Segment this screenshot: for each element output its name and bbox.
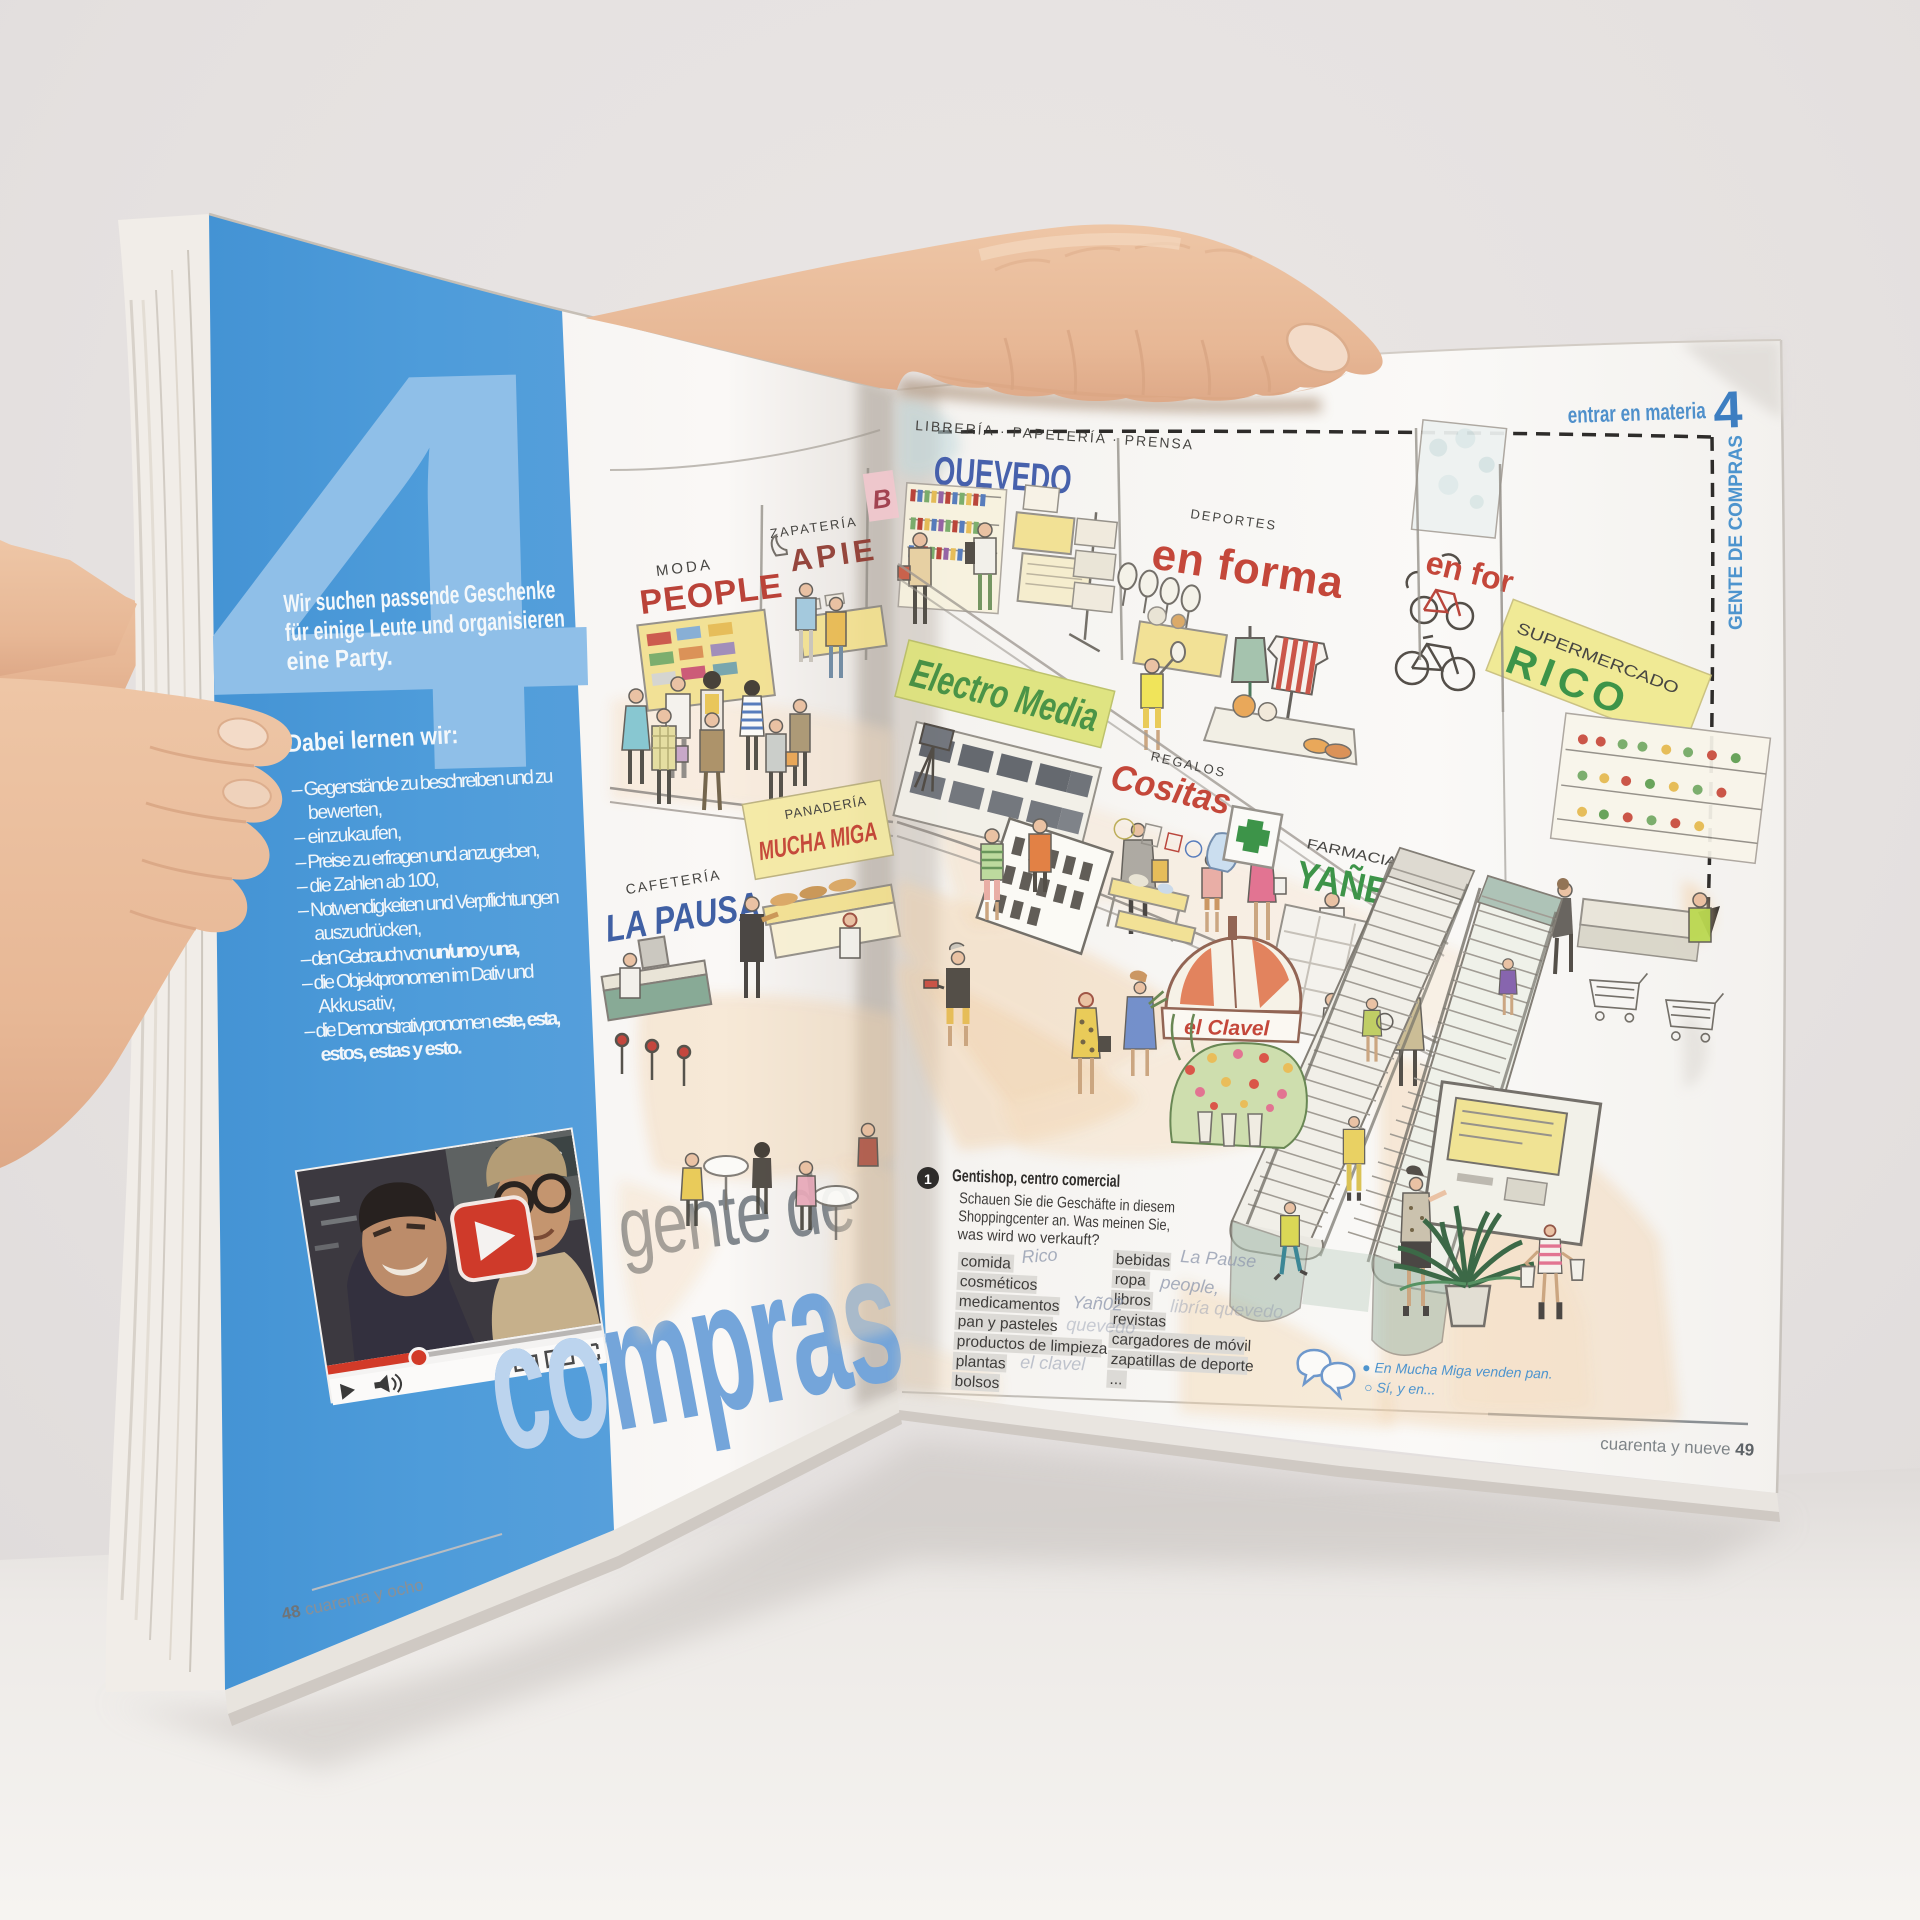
svg-text:comida: comida — [960, 1253, 1011, 1273]
svg-text:bewerten,: bewerten, — [307, 798, 383, 824]
svg-text:1: 1 — [924, 1171, 932, 1187]
svg-text:Rico: Rico — [1021, 1245, 1058, 1267]
svg-text:4: 4 — [1712, 381, 1743, 440]
svg-text:...: ... — [1109, 1371, 1123, 1389]
svg-text:quevedo: quevedo — [1066, 1314, 1136, 1338]
svg-text:eine Party.: eine Party. — [286, 643, 393, 677]
svg-text:entrar en materia: entrar en materia — [1567, 397, 1706, 428]
svg-text:el clavel: el clavel — [1020, 1352, 1087, 1374]
svg-text:ropa: ropa — [1114, 1271, 1146, 1290]
svg-text:Akkusativ,: Akkusativ, — [318, 992, 397, 1018]
svg-text:el Clavel: el Clavel — [1184, 1016, 1271, 1041]
svg-text:Yañ02: Yañ02 — [1072, 1292, 1124, 1315]
svg-text:plantas: plantas — [955, 1353, 1006, 1373]
svg-text:○ Sí, y en...: ○ Sí, y en... — [1364, 1379, 1436, 1397]
svg-text:GENTE DE COMPRAS: GENTE DE COMPRAS — [1726, 434, 1747, 630]
svg-text:bebidas: bebidas — [1115, 1251, 1170, 1271]
svg-text:bolsos: bolsos — [954, 1373, 1000, 1392]
